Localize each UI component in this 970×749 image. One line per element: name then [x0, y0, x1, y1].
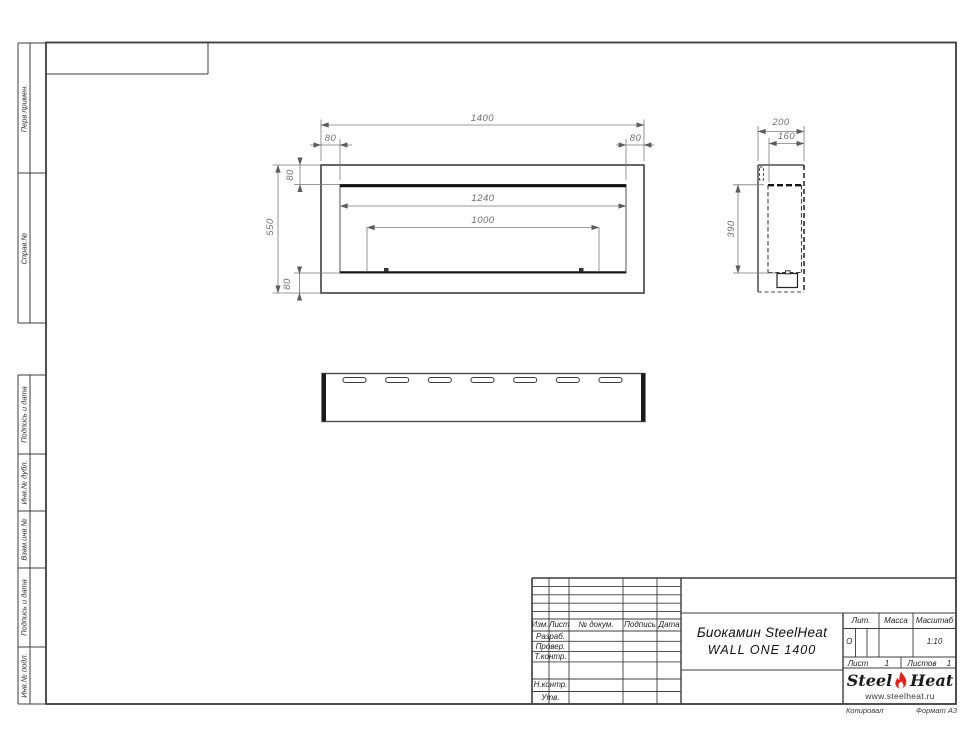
tb-col-doc: № докум. [569, 620, 623, 630]
copied-note: Копировал [846, 706, 883, 715]
margin-stamp-inv-podl: Инв.№ подл. [19, 611, 30, 741]
dim-side-opening-height: 390 [726, 207, 738, 251]
dim-front-total-height: 550 [265, 205, 277, 249]
tb-lit-label: Лит. [843, 616, 879, 626]
tb-sheet-label: Лист [845, 659, 871, 669]
format-note: Формат А3 [916, 706, 957, 715]
front-view [321, 165, 644, 293]
dim-front-margin-left: 80 [309, 133, 353, 145]
dim-front-margin-top: 80 [285, 153, 297, 197]
tb-sheets-label: Листов [905, 659, 939, 669]
logo-website: www.steelheat.ru [844, 691, 956, 701]
dim-side-inner-depth: 160 [765, 131, 809, 143]
dim-side-depth: 200 [759, 117, 803, 129]
tb-row-nkontr: Н.контр. [532, 680, 569, 690]
tb-row-prover: Провер. [532, 642, 569, 652]
document-title-line1: Биокамин SteelHeat [697, 624, 827, 642]
drawing-sheet: Перв.примен. Справ.№ Подпись и дата Инв.… [0, 0, 970, 749]
tb-row-tkontr: Т.контр. [532, 652, 569, 662]
dim-front-margin-right: 80 [614, 133, 658, 145]
tb-scale-value: 1:10 [913, 637, 956, 647]
dim-front-total-width: 1400 [461, 113, 505, 125]
dim-front-burner-width: 1000 [461, 215, 505, 227]
tb-row-utv: Утв. [532, 693, 569, 703]
tb-sheets-value: 1 [942, 659, 956, 669]
flame-icon [893, 671, 909, 691]
tb-mass-label: Масса [879, 616, 913, 626]
logo-steel-text: Steel [847, 672, 892, 690]
logo-heat-text: Heat [910, 672, 953, 690]
tb-col-izm: Изм. [530, 620, 550, 630]
document-title: Биокамин SteelHeat WALL ONE 1400 [683, 614, 841, 668]
tb-col-podpis: Подпись [623, 620, 657, 630]
tb-scale-label: Масштаб [913, 616, 956, 626]
tb-lit-value: О [843, 637, 856, 647]
tb-col-data: Дата [657, 620, 681, 630]
document-title-line2: WALL ONE 1400 [708, 642, 816, 659]
dim-front-margin-bottom: 80 [282, 262, 294, 306]
tb-col-list: Лист [549, 620, 569, 630]
dim-front-opening-width: 1240 [461, 193, 505, 205]
bottom-view [322, 374, 645, 422]
margin-stamp-perv-primen: Перв.примен. [19, 43, 30, 173]
tb-row-razrab: Разраб. [532, 632, 569, 642]
margin-stamp-sprav-no: Справ.№ [19, 183, 30, 313]
tb-sheet-value: 1 [880, 659, 894, 669]
